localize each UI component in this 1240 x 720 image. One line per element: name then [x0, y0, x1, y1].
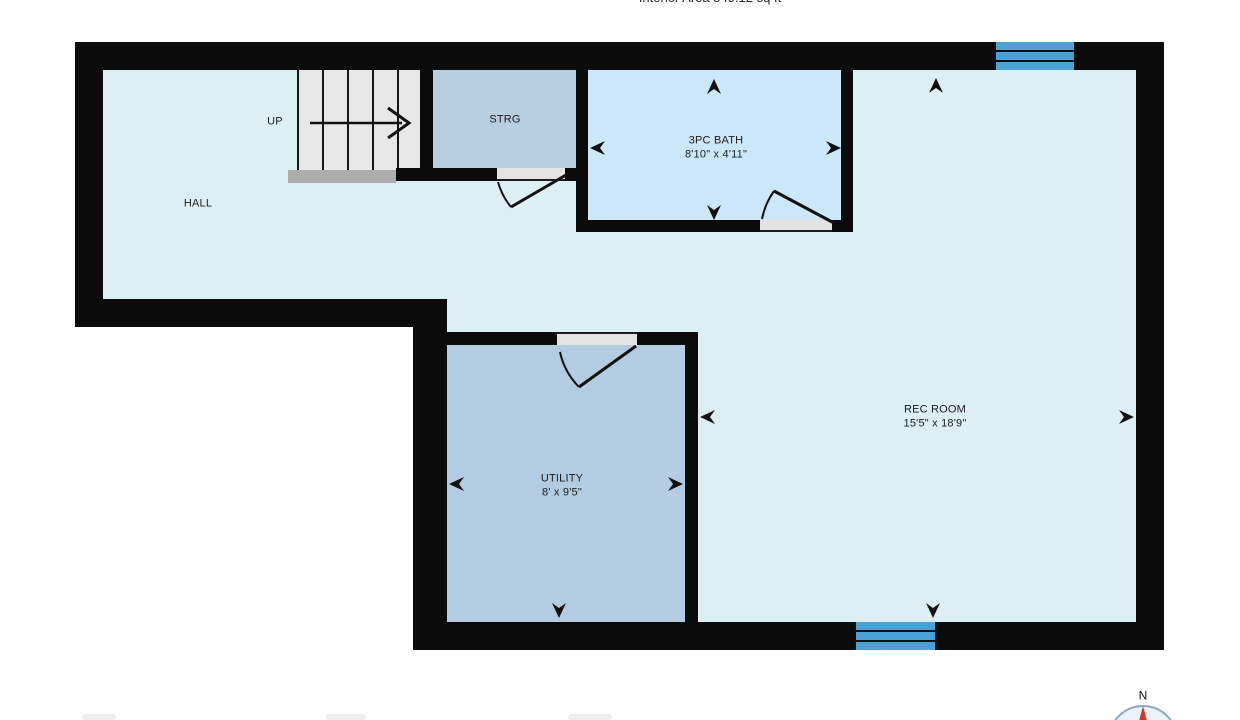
window-mullion [856, 640, 935, 642]
floorplan-canvas: Interior Area 549.12 sq ft [0, 0, 1240, 720]
stair-tread [347, 70, 349, 170]
utility-room-name: UTILITY [541, 473, 583, 487]
utility-room-dims: 8' x 9'5" [541, 486, 583, 500]
compass-circle-icon [1109, 706, 1177, 720]
stair-tread [372, 70, 374, 170]
watermark-fragment [568, 714, 612, 720]
rec-room-dims: 15'5" x 18'9" [904, 417, 967, 431]
window-mullion [856, 630, 935, 632]
wall-utility-right [685, 332, 698, 622]
wall-strg-bath [576, 70, 588, 232]
stair-landing [288, 170, 396, 183]
wall-bath-right [841, 70, 853, 232]
staircase [298, 70, 420, 170]
wall-stairs-right [420, 70, 433, 170]
utility-label: UTILITY 8' x 9'5" [541, 473, 583, 500]
strg-label: STRG [489, 113, 520, 127]
bath-room-dims: 8'10" x 4'11" [685, 148, 747, 162]
watermark-fragment [82, 714, 116, 720]
wall-left-upper [75, 42, 103, 327]
bath-room-name: 3PC BATH [685, 135, 747, 149]
stair-tread [297, 70, 299, 170]
interior-area-label: Interior Area 549.12 sq ft [639, 0, 781, 5]
bath-label: 3PC BATH 8'10" x 4'11" [685, 135, 747, 162]
compass-north-label: N [1139, 689, 1148, 703]
rec-room-name: REC ROOM [904, 404, 967, 418]
wall-right [1136, 42, 1164, 650]
bath-door-threshold [760, 220, 832, 232]
compass-needle-icon [1134, 706, 1152, 720]
stair-tread [322, 70, 324, 170]
wall-bottom [413, 622, 1164, 650]
rec-room-label: REC ROOM 15'5" x 18'9" [904, 404, 967, 431]
strg-door-threshold [497, 168, 565, 181]
wall-left-lower [413, 299, 447, 650]
utility-door-threshold [557, 332, 637, 345]
stairs-up-label: UP [267, 115, 283, 129]
wall-hall-bottom [75, 299, 447, 327]
wall-strg-bottom-left [396, 168, 497, 181]
window-mullion [996, 60, 1074, 62]
window-mullion [996, 50, 1074, 52]
watermark-fragment [326, 714, 366, 720]
window-bottom [856, 622, 935, 650]
window-top [996, 42, 1074, 70]
stair-tread [397, 70, 399, 170]
hall-label: HALL [184, 197, 212, 211]
